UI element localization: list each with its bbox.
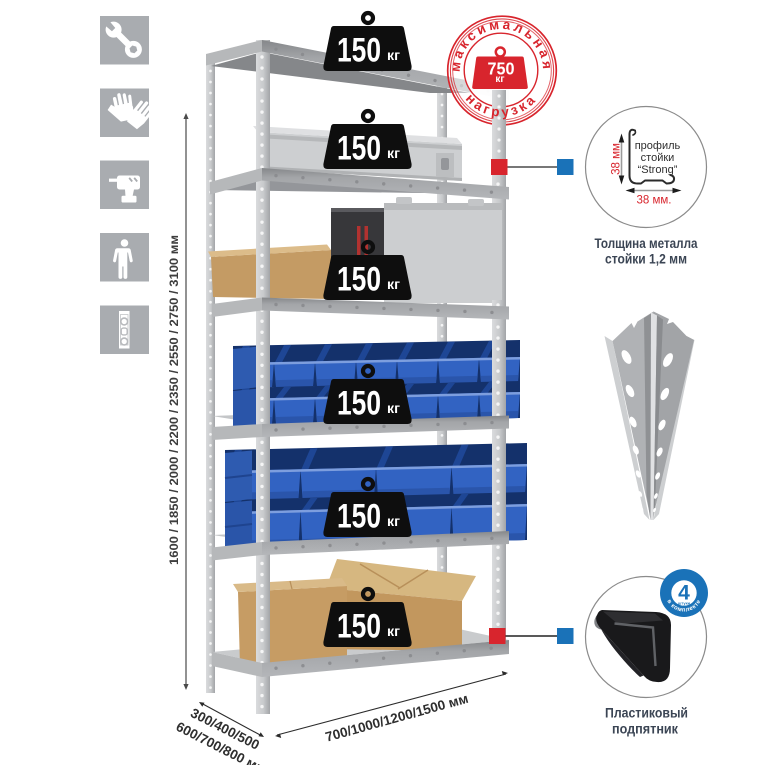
svg-text:кг: кг bbox=[387, 514, 400, 529]
svg-text:150: 150 bbox=[337, 261, 381, 299]
svg-text:кг: кг bbox=[387, 401, 400, 416]
svg-text:Пластиковый: Пластиковый bbox=[605, 705, 688, 721]
svg-text:подпятник: подпятник bbox=[612, 721, 679, 737]
svg-text:150: 150 bbox=[337, 32, 381, 70]
svg-text:150: 150 bbox=[337, 385, 381, 423]
svg-text:кг: кг bbox=[387, 146, 400, 161]
svg-text:150: 150 bbox=[337, 130, 381, 168]
svg-text:профиль: профиль bbox=[635, 140, 681, 152]
svg-text:“Strong”: “Strong” bbox=[638, 164, 678, 176]
svg-text:Толщина металла: Толщина металла bbox=[595, 235, 698, 251]
svg-text:штуки: штуки bbox=[678, 601, 691, 606]
svg-text:38 мм: 38 мм bbox=[611, 143, 623, 175]
svg-text:150: 150 bbox=[337, 608, 381, 646]
svg-text:стойки 1,2 мм: стойки 1,2 мм bbox=[605, 251, 687, 267]
svg-text:38 мм.: 38 мм. bbox=[637, 195, 672, 207]
svg-text:кг: кг bbox=[387, 48, 400, 63]
svg-text:стойки: стойки bbox=[641, 152, 675, 164]
svg-text:кг: кг bbox=[387, 624, 400, 639]
svg-text:1600 / 1850 / 2000 / 2200 / 23: 1600 / 1850 / 2000 / 2200 / 2350 / 2550 … bbox=[167, 235, 181, 565]
svg-text:кг: кг bbox=[387, 277, 400, 292]
svg-text:150: 150 bbox=[337, 498, 381, 536]
svg-text:кг: кг bbox=[495, 74, 504, 85]
